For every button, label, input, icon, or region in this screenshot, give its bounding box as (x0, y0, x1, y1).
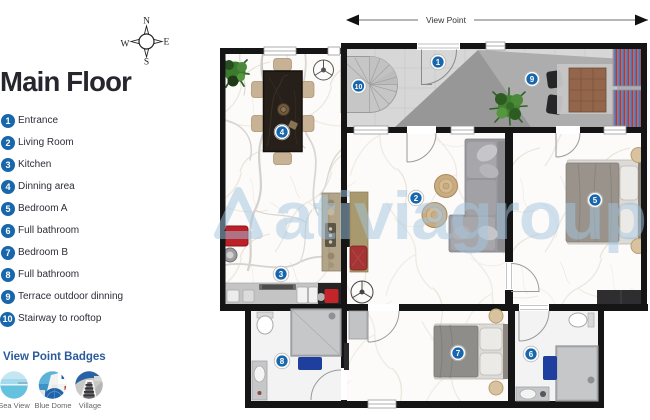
svg-text:3: 3 (279, 270, 284, 279)
svg-text:N: N (143, 17, 150, 27)
svg-text:6: 6 (529, 350, 534, 359)
svg-text:View Point: View Point (426, 15, 467, 25)
svg-text:E: E (164, 38, 170, 48)
svg-text:8: 8 (280, 357, 285, 366)
svg-text:ativiagroup: ativiagroup (274, 178, 646, 254)
svg-text:W: W (121, 40, 130, 50)
svg-text:7: 7 (456, 349, 461, 358)
svg-text:2: 2 (414, 194, 419, 203)
svg-text:S: S (144, 58, 149, 68)
svg-text:1: 1 (436, 58, 441, 67)
svg-text:4: 4 (280, 128, 285, 137)
svg-text:5: 5 (593, 196, 598, 205)
svg-text:9: 9 (530, 75, 535, 84)
svg-text:10: 10 (355, 84, 363, 91)
